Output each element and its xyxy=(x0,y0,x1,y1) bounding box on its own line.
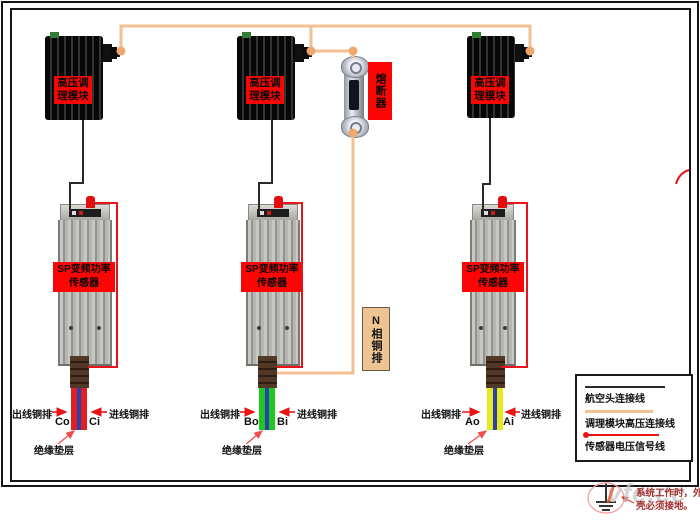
terminal-label-bi: Bi xyxy=(277,416,288,428)
in-busbar-label-2: 进线铜排 xyxy=(297,406,337,421)
out-busbar-label-3: 出线铜排 xyxy=(421,406,461,421)
legend-item-hv: 调理模块高压连接线 xyxy=(585,410,685,430)
out-busbar-label-1: 出线铜排 xyxy=(12,406,52,421)
border-red-tick xyxy=(676,170,689,184)
sensor-voltage-signal-line-3 xyxy=(501,203,527,367)
terminal-label-co: Co xyxy=(55,416,70,428)
in-busbar-label-3: 进线铜排 xyxy=(521,406,561,421)
hv-connection-bus xyxy=(121,26,530,51)
legend-item-signal: 传感器电压信号线 xyxy=(585,434,685,453)
insulation-label-3: 绝缘垫层 xyxy=(444,442,484,457)
hv-junction-dot-1 xyxy=(117,47,126,56)
legend-item-aviation: 航空头连接线 xyxy=(585,386,685,405)
aviation-cable-1 xyxy=(70,120,83,212)
hv-junction-dot-2 xyxy=(307,47,316,56)
in-busbar-label-1: 进线铜排 xyxy=(109,406,149,421)
hv-connection-n-busbar xyxy=(277,134,353,373)
terminal-label-ai: Ai xyxy=(503,416,514,428)
grounding-note: 系统工作时，外 壳必须接地。 xyxy=(636,487,698,513)
terminal-label-bo: Bo xyxy=(244,416,259,428)
n-phase-busbar-label: N相铜排 xyxy=(362,307,390,371)
out-busbar-label-2: 出线铜排 xyxy=(200,406,240,421)
hv-junction-dot-fuse-top xyxy=(349,47,358,56)
hv-junction-dot-fuse-bottom xyxy=(349,129,358,138)
insulation-label-1: 绝缘垫层 xyxy=(34,442,74,457)
hv-junction-dot-3 xyxy=(526,47,535,56)
red-line-sample-icon xyxy=(585,434,659,436)
aviation-cable-2 xyxy=(259,120,272,212)
terminal-label-ci: Ci xyxy=(89,416,100,428)
sensor-voltage-signal-line-1 xyxy=(88,203,117,367)
legend-box: 航空头连接线 调理模块高压连接线 传感器电压信号线 xyxy=(575,374,693,462)
fuse-label: 熔断器 xyxy=(368,62,392,120)
orange-line-sample-icon xyxy=(585,410,653,413)
terminal-label-ao: Ao xyxy=(465,416,480,428)
sensor-voltage-signal-line-2 xyxy=(277,203,302,367)
wiring-diagram: 高压调理模块 高压调理模块 高压调理模块 熔断器 N相铜排 SP变频功率 xyxy=(0,0,700,522)
aviation-cable-3 xyxy=(483,118,490,212)
hv-connection-fuse-feed xyxy=(311,26,353,58)
black-line-sample-icon xyxy=(585,386,665,388)
insulation-label-2: 绝缘垫层 xyxy=(222,442,262,457)
